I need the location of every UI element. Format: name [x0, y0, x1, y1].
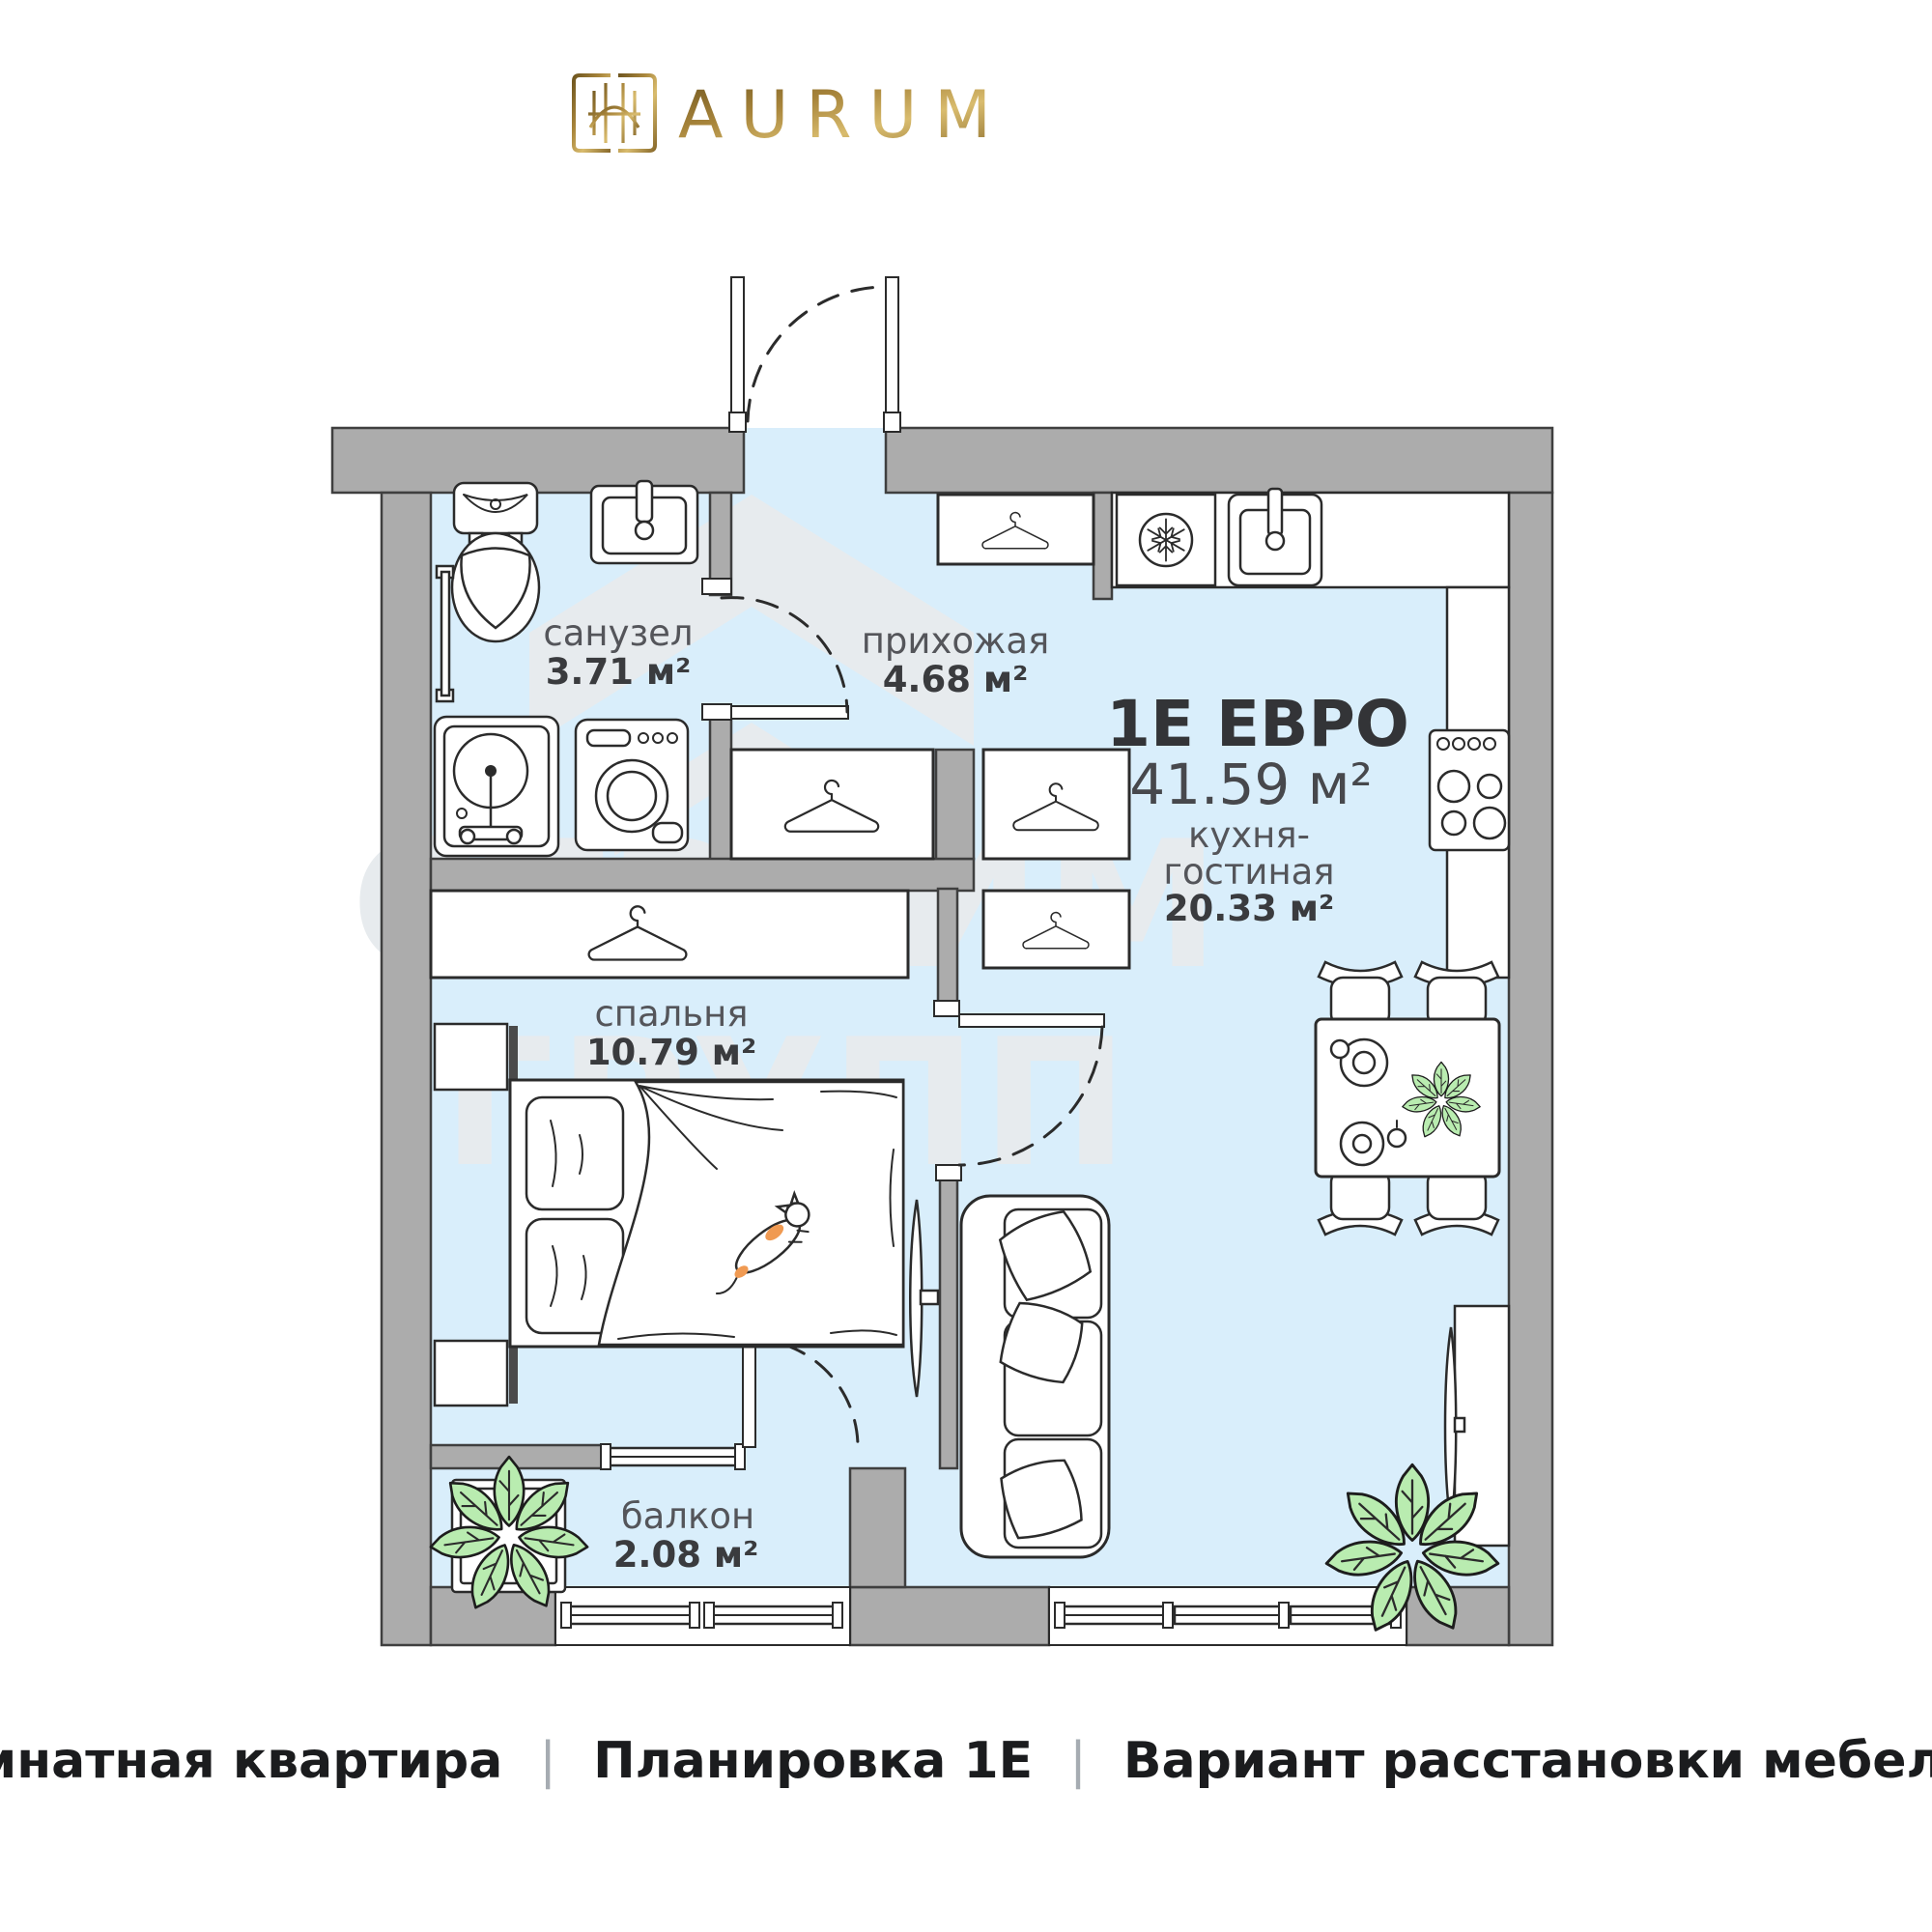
hallway-area: 4.68 м²	[883, 659, 1029, 700]
living-room-window	[1055, 1603, 1401, 1628]
wall-bedroom-balcony	[431, 1445, 605, 1468]
wall-central-lower	[940, 1177, 957, 1468]
wall-kitchen-stub	[1094, 493, 1112, 599]
footer-segment-2: Планировка 1Е	[593, 1732, 1033, 1790]
wall-central-mid	[938, 889, 957, 1007]
bedroom-area: 10.79 м²	[586, 1032, 756, 1073]
footer-separator: |	[1069, 1732, 1087, 1790]
wall-balcony-living	[850, 1468, 905, 1587]
sofa	[961, 1196, 1109, 1557]
bed-leg-bottom	[509, 1343, 518, 1404]
hallway-name: прихожая	[862, 620, 1050, 662]
fridge-icon	[1117, 495, 1215, 585]
plan-total-area: 41.59 м²	[1129, 752, 1372, 817]
hallway-closet-right	[983, 750, 1129, 859]
wall-bathroom-lower	[710, 712, 731, 881]
footer-segment-1: 1-комнатная квартира	[0, 1732, 502, 1790]
hallway-closet-left	[731, 750, 933, 859]
kitchen-living-area: 20.33 м²	[1164, 888, 1334, 929]
wall-top-left	[332, 428, 744, 493]
aurum-logo-icon	[574, 75, 655, 151]
nightstand-top	[435, 1024, 507, 1090]
hallway-closet-top	[938, 495, 1094, 564]
cup	[1331, 1040, 1349, 1058]
kitchen-living-name-1: кухня-	[1188, 814, 1310, 856]
bathroom-sink-icon	[591, 481, 697, 563]
balcony-name: балкон	[621, 1495, 754, 1537]
stove-icon	[1430, 730, 1509, 850]
brand-name: AURUM	[678, 77, 1009, 154]
cup	[1388, 1129, 1406, 1147]
kitchen-living-name-2: гостиная	[1163, 851, 1334, 893]
footer-separator: |	[539, 1732, 556, 1790]
wall-left	[382, 493, 431, 1645]
washing-machine-icon	[576, 720, 688, 850]
bathroom-name: санузел	[543, 612, 693, 654]
wall-bath-bedroom	[431, 859, 974, 891]
bed	[510, 1080, 903, 1347]
bedroom-balcony-window	[601, 1444, 745, 1469]
corridor-closet	[983, 891, 1129, 968]
wall-right	[1509, 493, 1552, 1645]
floorplan-svg: AURUM СТРОИМ ГРУПП	[0, 0, 1932, 1932]
toilet-icon	[452, 483, 539, 641]
kitchen-sink-icon	[1229, 489, 1321, 585]
entrance-door-swing-arc	[748, 287, 884, 421]
bedroom-name: спальня	[594, 993, 748, 1035]
plan-type-title: 1Е ЕВРО	[1106, 687, 1409, 761]
brand-logo: AURUM	[574, 75, 1009, 154]
bedroom-wardrobe	[431, 891, 908, 978]
floorplan-page: AURUM СТРОИМ ГРУПП	[0, 0, 1932, 1932]
wall-bottom-2	[850, 1587, 1049, 1645]
laundry-sink-icon	[435, 717, 558, 856]
balcony-area: 2.08 м²	[613, 1534, 759, 1576]
footer-caption: 1-комнатная квартира | Планировка 1Е | В…	[0, 1732, 1932, 1790]
bed-leg-top	[509, 1026, 518, 1088]
wall-central-upper	[936, 750, 974, 859]
bathroom-area: 3.71 м²	[546, 651, 692, 693]
wall-top-right	[886, 428, 1552, 493]
footer-segment-3: Вариант расстановки мебели М1	[1123, 1732, 1932, 1790]
entrance-door	[729, 277, 900, 432]
nightstand-bottom	[435, 1341, 507, 1406]
